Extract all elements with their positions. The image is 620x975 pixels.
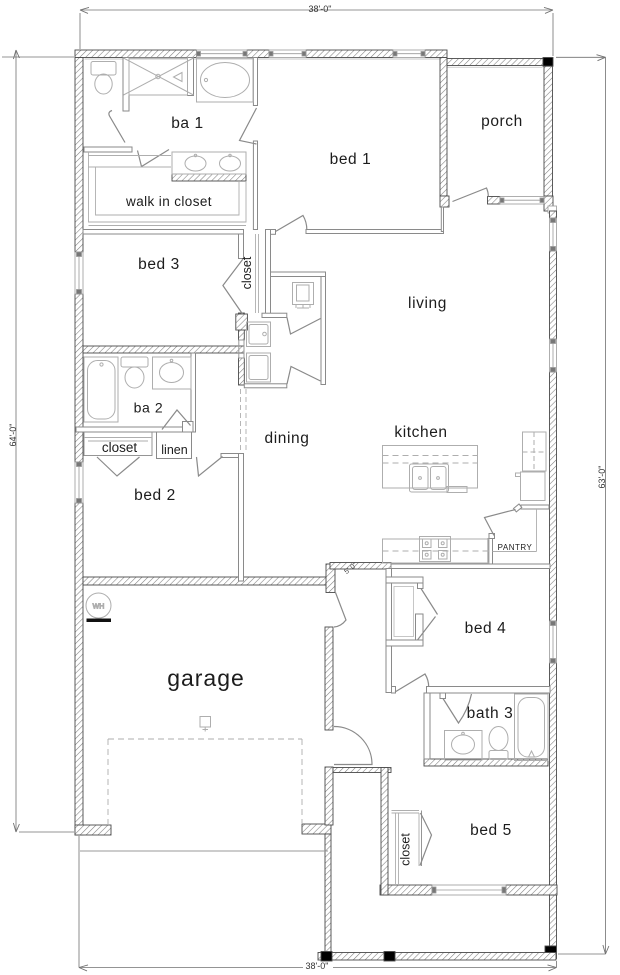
svg-text:linen: linen [161, 443, 187, 457]
svg-text:bed 2: bed 2 [134, 487, 176, 504]
svg-text:PANTRY: PANTRY [498, 543, 533, 552]
svg-text:WH: WH [93, 604, 105, 611]
svg-text:bed 5: bed 5 [470, 822, 512, 839]
svg-text:64'-0": 64'-0" [8, 424, 18, 447]
svg-text:closet: closet [102, 440, 138, 455]
svg-text:bed 3: bed 3 [138, 256, 180, 273]
svg-text:living: living [408, 295, 447, 312]
svg-text:bath 3: bath 3 [467, 705, 514, 722]
svg-text:closet: closet [240, 256, 254, 289]
svg-text:bed 4: bed 4 [465, 620, 507, 637]
svg-text:ba 1: ba 1 [171, 115, 204, 132]
svg-text:walk in closet: walk in closet [125, 194, 212, 209]
svg-text:garage: garage [167, 665, 245, 691]
svg-text:closet: closet [399, 833, 413, 866]
svg-text:38'-0": 38'-0" [306, 961, 329, 971]
svg-text:porch: porch [481, 113, 523, 130]
svg-text:kitchen: kitchen [394, 424, 447, 441]
svg-text:dining: dining [265, 430, 310, 447]
svg-text:38'-0": 38'-0" [309, 4, 332, 14]
svg-text:ba 2: ba 2 [134, 400, 164, 416]
svg-text:bed 1: bed 1 [330, 151, 372, 168]
svg-text:63'-0": 63'-0" [597, 466, 607, 489]
